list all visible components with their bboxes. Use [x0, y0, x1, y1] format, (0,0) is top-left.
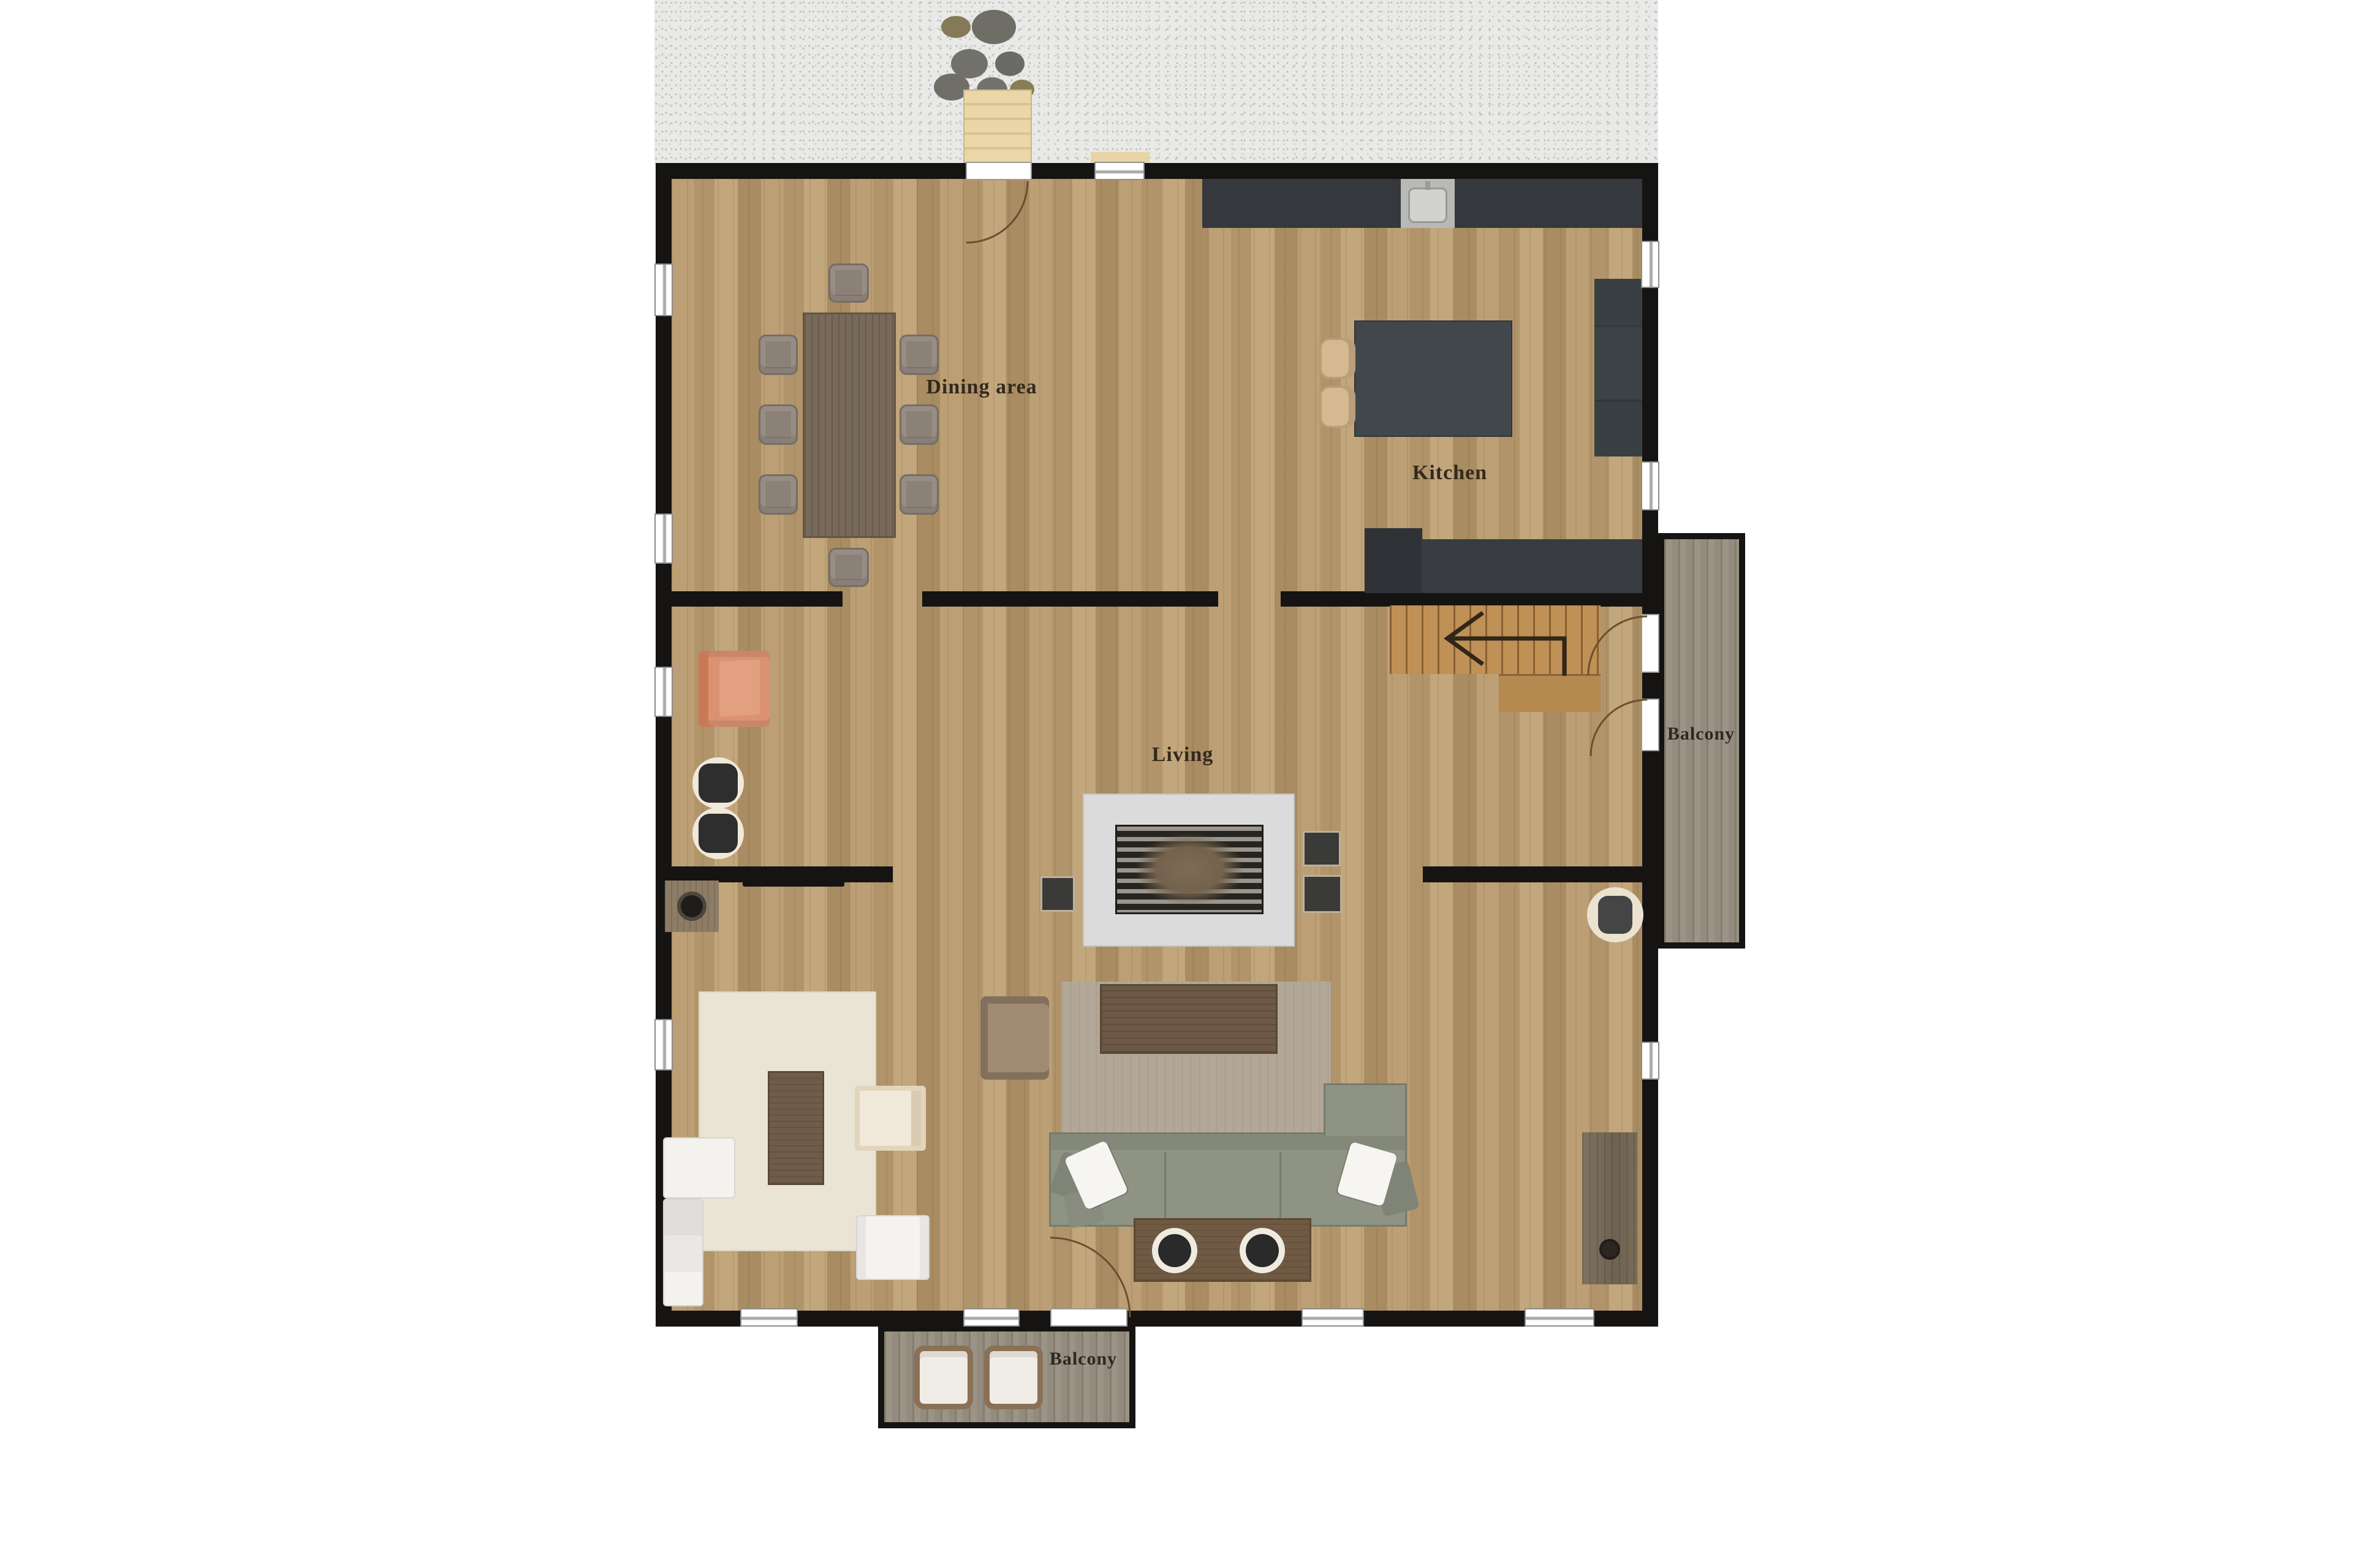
console-speaker-center [1246, 1234, 1279, 1267]
cabinet [1582, 1132, 1637, 1284]
dining-chair [759, 404, 798, 445]
sink-faucet [1425, 181, 1430, 190]
window [740, 1308, 798, 1327]
speaker [1303, 831, 1341, 866]
cream-armchair [855, 1086, 926, 1151]
dining-table [803, 312, 896, 538]
island-stool [1320, 338, 1355, 379]
balcony-door [1050, 1308, 1127, 1327]
entry-door-opening [966, 162, 1032, 180]
pouf-top [699, 814, 738, 853]
window [1525, 1308, 1594, 1327]
window [654, 1019, 673, 1070]
kitchen-counter-right [1594, 279, 1642, 456]
window [1641, 1042, 1659, 1080]
island-stool [1320, 386, 1355, 428]
room-label-balcony-right: Balcony [1667, 724, 1735, 744]
white-sofa [663, 1137, 735, 1199]
interior-wall [922, 591, 1218, 607]
sofa-chaise [1324, 1083, 1407, 1136]
kitchen-sink [1408, 187, 1447, 223]
dining-chair [759, 335, 798, 375]
living-coffee-table [1100, 984, 1278, 1054]
staircase [1390, 605, 1601, 674]
room-label-dining: Dining area [926, 376, 1037, 399]
sofa-seat-divider [1164, 1152, 1166, 1224]
orange-armchair [699, 651, 770, 727]
window [654, 513, 673, 564]
speaker [1303, 875, 1342, 913]
interior-wall [1281, 591, 1642, 607]
console-speaker-center [1158, 1234, 1191, 1267]
window [1641, 461, 1659, 510]
window [1302, 1308, 1364, 1327]
balcony-door [1641, 699, 1659, 751]
dining-chair [828, 548, 869, 587]
white-armchair [856, 1215, 930, 1280]
wood-stove [665, 881, 719, 932]
tv-room-coffee-table [768, 1071, 824, 1185]
room-label-kitchen: Kitchen [1412, 461, 1487, 485]
kitchen-counter-bottom [1422, 539, 1642, 593]
interior-wall [1423, 866, 1642, 882]
room-label-balcony-bottom: Balcony [1050, 1349, 1117, 1369]
dining-chair [900, 335, 939, 375]
white-sofa-chaise [663, 1199, 703, 1306]
window [963, 1308, 1020, 1327]
stove-burner [677, 892, 707, 921]
balcony-door [1641, 614, 1659, 673]
stair-landing [1499, 674, 1601, 712]
dining-chair [759, 474, 798, 515]
speaker [1040, 876, 1075, 912]
window [654, 263, 673, 316]
tv [743, 880, 844, 887]
kitchen-island [1354, 320, 1512, 437]
dining-chair [900, 474, 939, 515]
window [1641, 241, 1659, 288]
window [1094, 162, 1145, 180]
entry-steps [963, 89, 1032, 164]
sofa-seat-divider [1279, 1152, 1281, 1224]
cabinet-knob [1599, 1239, 1620, 1260]
room-label-living: Living [1152, 743, 1213, 767]
brown-armchair [980, 996, 1049, 1080]
pouf-top [699, 763, 738, 803]
balcony-chair [914, 1346, 973, 1409]
floor-plan-canvas: Dining area Kitchen Living Balcony Balco… [0, 0, 2353, 1568]
side-table-top [1598, 896, 1632, 934]
stepping-stone [995, 51, 1025, 76]
balcony-chair [984, 1346, 1043, 1409]
stepping-stone [972, 10, 1016, 44]
window [654, 667, 673, 717]
armchair-seat [719, 659, 760, 716]
kitchen-stove-counter [1365, 528, 1422, 593]
gravel-terrace [654, 0, 1658, 165]
dining-chair [828, 263, 869, 303]
fireplace-firebox [1115, 825, 1264, 914]
dining-chair [900, 404, 939, 445]
interior-wall [672, 591, 843, 607]
stepping-stone [941, 16, 971, 38]
